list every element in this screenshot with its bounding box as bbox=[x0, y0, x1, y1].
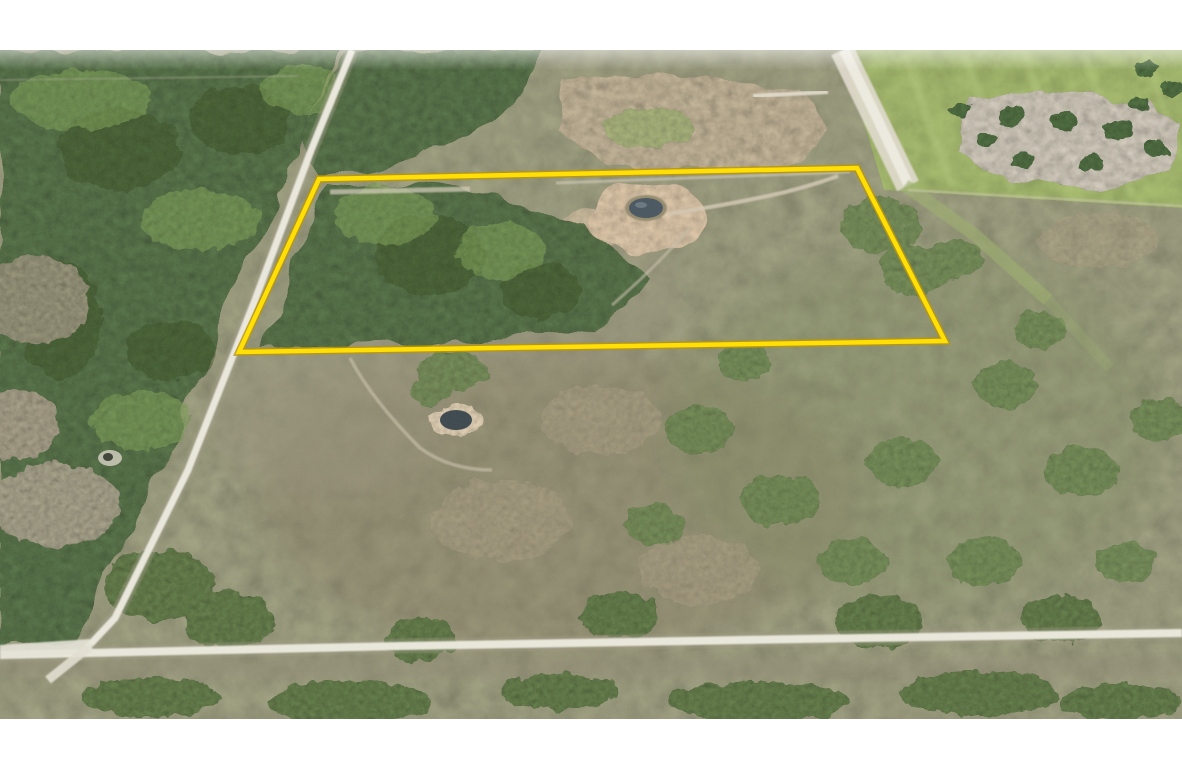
listing-photo-canvas bbox=[0, 0, 1182, 772]
aerial-photo bbox=[0, 50, 1182, 724]
photo-grain bbox=[0, 50, 1182, 719]
letterbox-top bbox=[0, 0, 1182, 50]
letterbox-bottom bbox=[0, 719, 1182, 772]
